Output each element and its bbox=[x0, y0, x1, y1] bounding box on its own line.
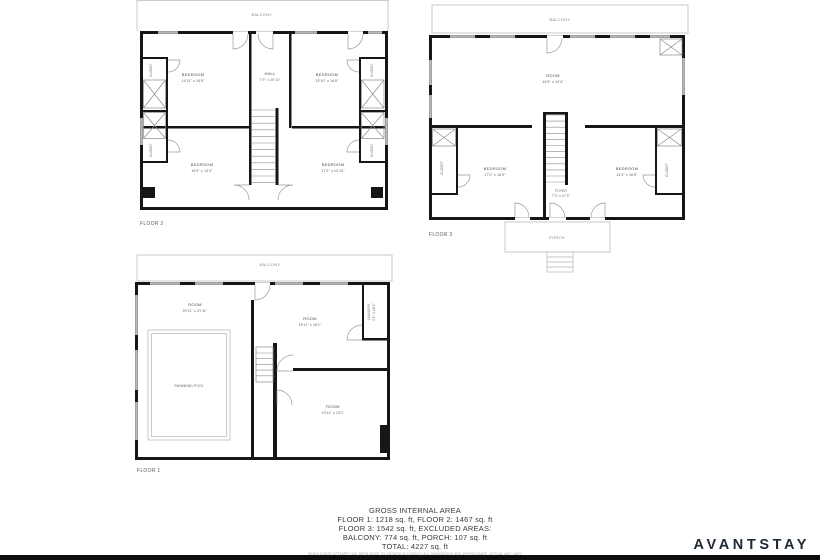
pool-label: SWIMMING POOL bbox=[174, 384, 203, 388]
room-dims: 19'11" x 13'1" bbox=[321, 411, 345, 415]
balcony-label: BALCONY bbox=[550, 18, 571, 22]
floor3-porch: PORCH bbox=[505, 222, 610, 272]
floor2-balcony: BALCONY bbox=[137, 0, 388, 31]
floor1-pool: SWIMMING POOL bbox=[148, 330, 230, 440]
room-dims: 29'11" x 21'11" bbox=[183, 309, 208, 313]
room-label: BEDROOM bbox=[616, 166, 638, 171]
room-label: BEDROOM bbox=[316, 72, 338, 77]
floor1-balcony: BALCONY bbox=[137, 255, 392, 281]
porch-label: PORCH bbox=[549, 236, 565, 240]
floor1-walls bbox=[135, 282, 390, 460]
laundry-label: LAUNDRY bbox=[367, 303, 371, 320]
floor3-stairs bbox=[546, 115, 565, 182]
room-dims: 7'9" x 20'11" bbox=[260, 78, 282, 82]
floor1-stairs bbox=[256, 347, 273, 382]
floor-label: FLOOR 3 bbox=[429, 232, 453, 238]
room-dims: 13'10" x 16'6" bbox=[315, 79, 339, 83]
room-dims: 14'3" x 16'8" bbox=[616, 173, 638, 177]
room-label: BEDROOM bbox=[191, 162, 213, 167]
laundry-dims: 4'1" x 16'4" bbox=[372, 303, 376, 321]
room-label: ROOM bbox=[188, 302, 201, 307]
closet-label: CLOSET bbox=[149, 63, 153, 77]
floor2-plan: BALCONY bbox=[130, 0, 395, 232]
summary-line: FLOOR 1: 1218 sq. ft, FLOOR 2: 1467 sq. … bbox=[280, 515, 550, 524]
floor2-labels: BEDROOM 14'11" x 16'8" HALL 7'9" x 20'11… bbox=[140, 63, 374, 227]
closet-label: CLOSET bbox=[665, 163, 669, 177]
room-dims: 17'2" x 13'10" bbox=[321, 169, 345, 173]
room-label: BEDROOM bbox=[182, 72, 204, 77]
floor3-labels: ROOM 46'8" x 24'4" BEDROOM 17'0" x 16'5"… bbox=[429, 73, 669, 238]
closet-label: CLOSET bbox=[440, 161, 444, 175]
floor1-plan: BALCONY SWIMMING bbox=[125, 250, 400, 480]
room-label: FOYER bbox=[555, 189, 567, 193]
floor2-walls bbox=[140, 31, 388, 210]
room-label: BEDROOM bbox=[484, 166, 506, 171]
area-summary: GROSS INTERNAL AREA FLOOR 1: 1218 sq. ft… bbox=[280, 506, 550, 558]
floor3-balcony: BALCONY bbox=[432, 5, 688, 33]
summary-line: BALCONY: 774 sq. ft, PORCH: 107 sq. ft bbox=[280, 533, 550, 542]
floor3-closet-symbols bbox=[433, 39, 683, 146]
brand-logo: AVANTSTAY bbox=[694, 537, 810, 553]
floor1-labels: ROOM 29'11" x 21'11" ROOM 19'11" x 16'1"… bbox=[137, 302, 376, 474]
room-dims: 19'11" x 16'1" bbox=[298, 323, 322, 327]
floor1-doors bbox=[255, 285, 362, 405]
summary-title: GROSS INTERNAL AREA bbox=[280, 506, 550, 515]
closet-label: CLOSET bbox=[149, 143, 153, 157]
room-dims: 46'8" x 24'4" bbox=[542, 80, 564, 84]
balcony-label: BALCONY bbox=[260, 263, 281, 267]
floor-label: FLOOR 1 bbox=[137, 468, 161, 474]
balcony-label: BALCONY bbox=[252, 13, 273, 17]
room-label: BEDROOM bbox=[322, 162, 344, 167]
room-dims: 7'3" x 17'0" bbox=[552, 194, 570, 198]
summary-line: TOTAL: 4227 sq. ft bbox=[280, 542, 550, 551]
closet-label: CLOSET bbox=[370, 63, 374, 77]
room-dims: 14'11" x 16'8" bbox=[181, 79, 205, 83]
floor-label: FLOOR 2 bbox=[140, 221, 164, 227]
room-dims: 16'9" x 13'3" bbox=[191, 169, 213, 173]
floor2-doors bbox=[168, 34, 363, 200]
bottom-bar bbox=[0, 555, 820, 560]
summary-line: FLOOR 3: 1542 sq. ft, EXCLUDED AREAS: bbox=[280, 524, 550, 533]
room-label: HALL bbox=[264, 71, 276, 76]
room-label: ROOM bbox=[303, 316, 316, 321]
floor2-stairs bbox=[252, 110, 275, 183]
floorplan-page: BALCONY bbox=[0, 0, 820, 560]
room-label: ROOM bbox=[546, 73, 559, 78]
floor3-plan: BALCONY bbox=[420, 0, 705, 275]
room-dims: 17'0" x 16'5" bbox=[484, 173, 506, 177]
floor1-windows bbox=[135, 282, 348, 440]
closet-label: CLOSET bbox=[370, 143, 374, 157]
room-label: ROOM bbox=[326, 404, 339, 409]
